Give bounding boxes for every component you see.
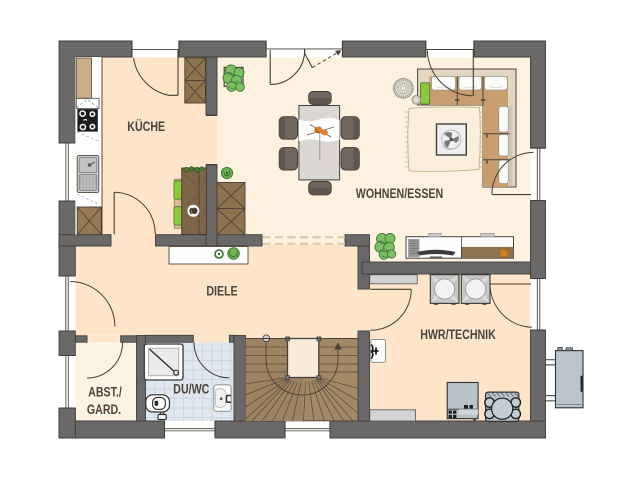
- svg-text:KÜCHE: KÜCHE: [127, 117, 165, 134]
- svg-text:GARD.: GARD.: [87, 402, 121, 418]
- svg-text:HWR/TECHNIK: HWR/TECHNIK: [420, 326, 496, 342]
- svg-text:DIELE: DIELE: [206, 283, 237, 299]
- svg-text:WOHNEN/ESSEN: WOHNEN/ESSEN: [356, 186, 443, 202]
- svg-text:ABST./: ABST./: [88, 384, 122, 400]
- svg-text:DU/WC: DU/WC: [173, 381, 209, 397]
